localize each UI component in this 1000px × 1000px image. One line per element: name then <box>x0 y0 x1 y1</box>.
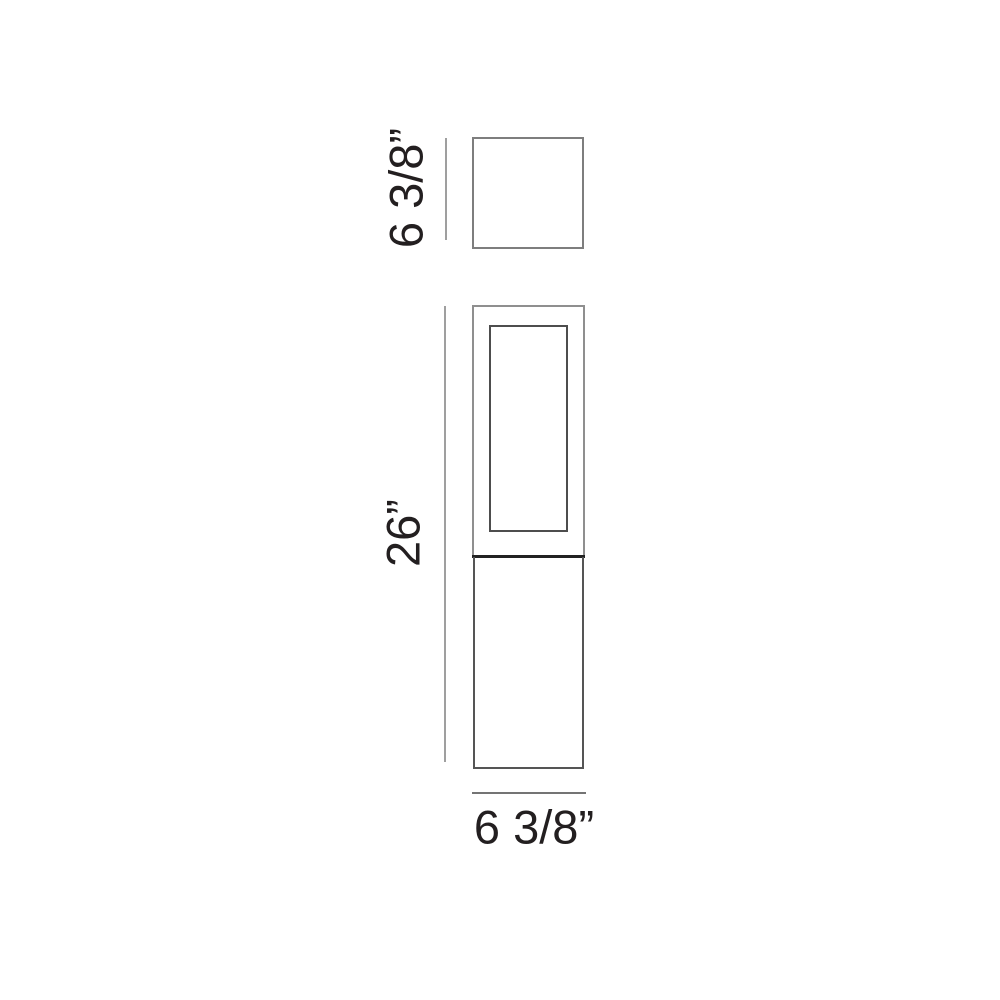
dimension-label-width: 6 3/8” <box>474 804 594 851</box>
dimension-label-top-depth: 6 3/8” <box>383 128 430 248</box>
dimension-drawing-page: 6 3/8” 26” 6 3/8” <box>0 0 1000 1000</box>
dimension-line-width <box>472 792 586 794</box>
front-view-window-panel <box>489 325 568 532</box>
dimension-label-height: 26” <box>380 499 427 567</box>
front-view-body-outline <box>473 557 584 769</box>
dimension-line-top-depth <box>445 138 447 240</box>
top-view-square <box>472 137 584 249</box>
dimension-line-height <box>444 306 446 762</box>
